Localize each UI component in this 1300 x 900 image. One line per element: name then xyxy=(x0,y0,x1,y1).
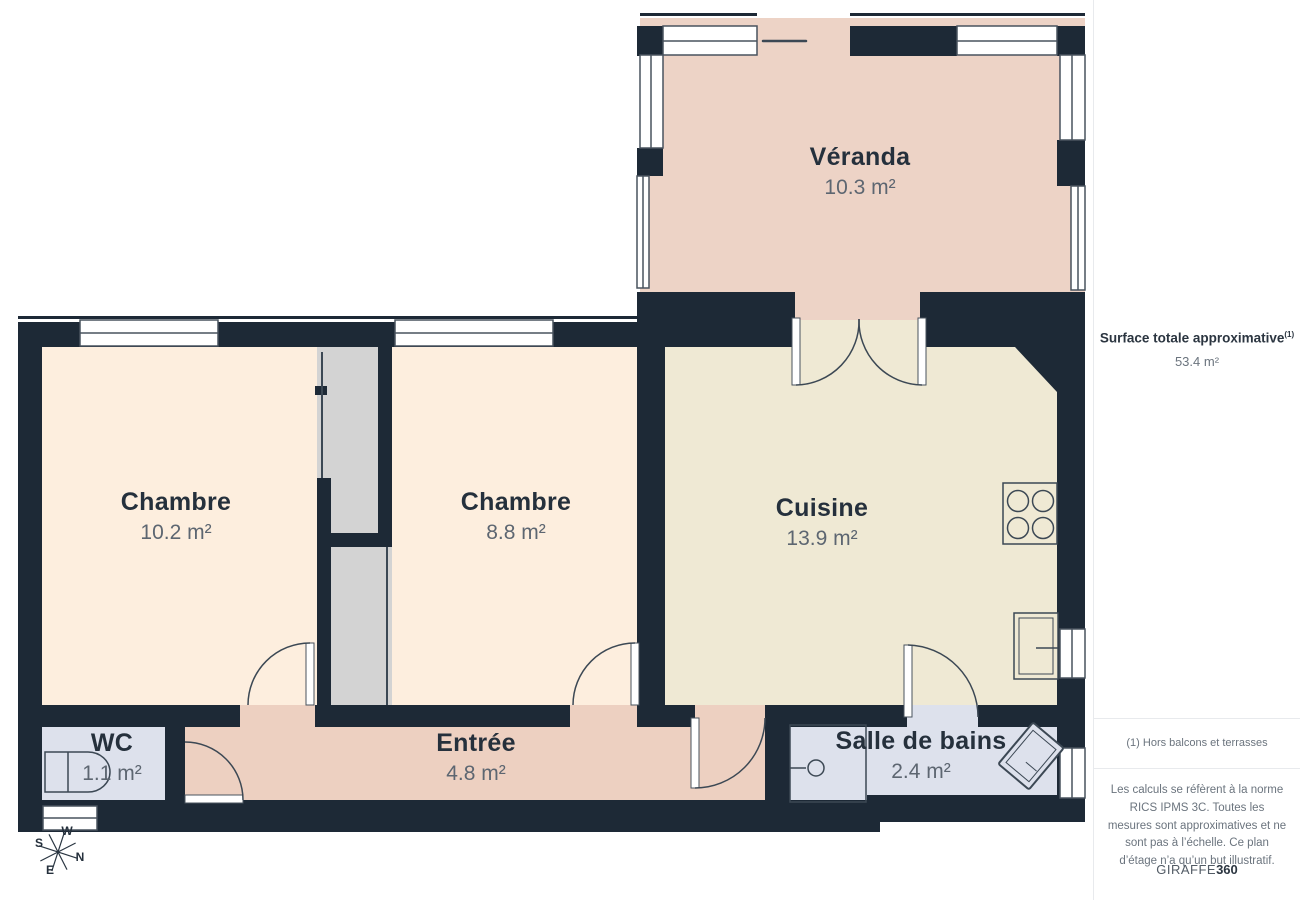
brand-name: GIRAFFE xyxy=(1156,862,1216,877)
room-area: 2.4 m² xyxy=(836,760,1007,784)
room-label-chambre1: Chambre 10.2 m² xyxy=(121,488,231,545)
bedroom2-window xyxy=(395,320,553,346)
veranda-window-left xyxy=(640,55,663,148)
room-label-veranda: Véranda 10.3 m² xyxy=(810,143,911,200)
room-name: Salle de bains xyxy=(836,727,1007,756)
veranda-window-top-right xyxy=(957,26,1057,55)
total-area-title-text: Surface totale approximative xyxy=(1100,331,1285,346)
floor-plan-page: Véranda 10.3 m² Chambre 10.2 m² Chambre … xyxy=(0,0,1300,900)
veranda-glass-left xyxy=(637,176,649,288)
room-name: Véranda xyxy=(810,143,911,172)
veranda-window-top-left xyxy=(663,26,757,55)
room-name: Chambre xyxy=(461,488,571,517)
room-name: Chambre xyxy=(121,488,231,517)
veranda-glass-right xyxy=(1071,186,1085,290)
room-area: 10.3 m² xyxy=(810,176,911,200)
room-name: Cuisine xyxy=(776,494,868,523)
veranda-window-right xyxy=(1060,55,1085,140)
room-label-cuisine: Cuisine 13.9 m² xyxy=(776,494,868,551)
total-area-title: Surface totale approximative(1) xyxy=(1094,330,1300,346)
footnote-marker: (1) xyxy=(1284,330,1294,339)
room-label-entree: Entrée 4.8 m² xyxy=(436,729,516,786)
kitchen-sink-icon xyxy=(1014,613,1058,679)
compass-label-east: E xyxy=(46,863,54,877)
compass-label-north: N xyxy=(76,850,85,864)
brand-suffix: 360 xyxy=(1216,862,1238,877)
kitchen-window xyxy=(1060,629,1085,678)
total-area-value: 53.4 m² xyxy=(1094,354,1300,369)
disclaimer-text: Les calculs se réfèrent à la norme RICS … xyxy=(1094,782,1300,871)
info-sidebar: Surface totale approximative(1) 53.4 m² … xyxy=(1093,0,1300,900)
compass-label-south: S xyxy=(35,836,43,850)
room-label-wc: WC 1.1 m² xyxy=(82,729,142,786)
room-label-salle-de-bains: Salle de bains 2.4 m² xyxy=(836,727,1007,784)
giraffe360-logo: GIRAFFE360 xyxy=(1094,862,1300,877)
room-name: Entrée xyxy=(436,729,516,758)
bedroom1-window xyxy=(80,320,218,346)
divider xyxy=(1094,718,1300,719)
divider xyxy=(1094,768,1300,769)
room-area: 4.8 m² xyxy=(436,762,516,786)
room-floors xyxy=(18,18,1085,805)
room-area: 8.8 m² xyxy=(461,521,571,545)
room-area: 1.1 m² xyxy=(82,762,142,786)
room-label-chambre2: Chambre 8.8 m² xyxy=(461,488,571,545)
stove-icon xyxy=(1003,483,1057,544)
room-area: 10.2 m² xyxy=(121,521,231,545)
room-name: WC xyxy=(82,729,142,758)
room-area: 13.9 m² xyxy=(776,527,868,551)
footnote-text: (1) Hors balcons et terrasses xyxy=(1094,737,1300,749)
bathroom-window xyxy=(1060,748,1085,798)
compass-label-west: W xyxy=(61,824,72,838)
